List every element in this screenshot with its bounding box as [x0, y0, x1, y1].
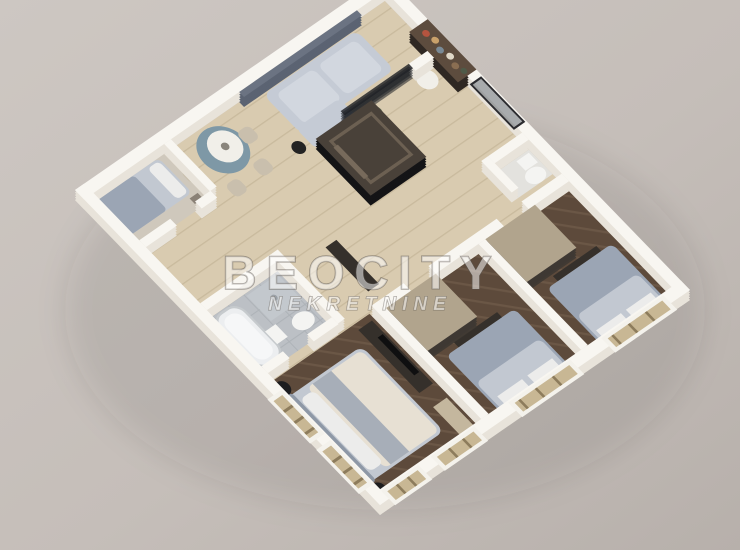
watermark-title: BEOCITY	[223, 246, 502, 299]
screenshot-root: BEOCITY NEKRETNINE	[0, 0, 740, 550]
watermark-subtitle: NEKRETNINE	[268, 294, 452, 315]
floor-plan-render: BEOCITY NEKRETNINE	[0, 0, 740, 550]
